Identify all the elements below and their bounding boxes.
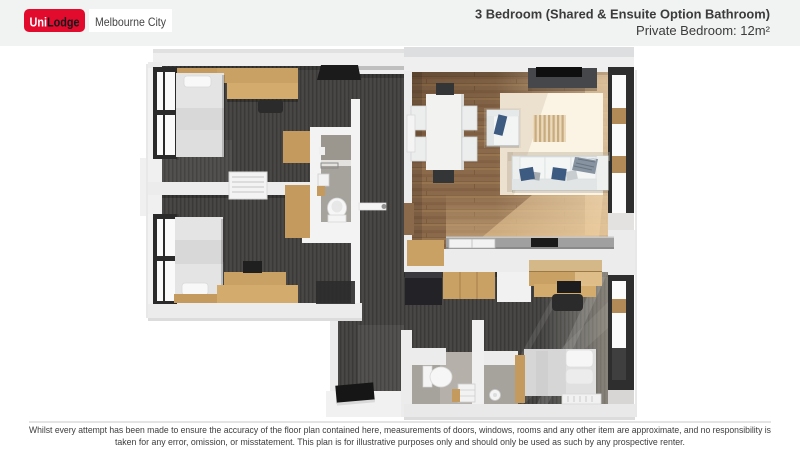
svg-text:Melbourne City: Melbourne City <box>95 15 166 29</box>
svg-text:Whilst every attempt has been: Whilst every attempt has been made to en… <box>29 424 771 435</box>
svg-text:taken for any error, omission,: taken for any error, omission, or missta… <box>115 436 685 447</box>
svg-text:UniLodge: UniLodge <box>30 16 80 30</box>
svg-text:Private Bedroom: 12m²: Private Bedroom: 12m² <box>636 23 771 38</box>
svg-text:3 Bedroom (Shared & Ensuite Op: 3 Bedroom (Shared & Ensuite Option Bathr… <box>475 7 770 22</box>
